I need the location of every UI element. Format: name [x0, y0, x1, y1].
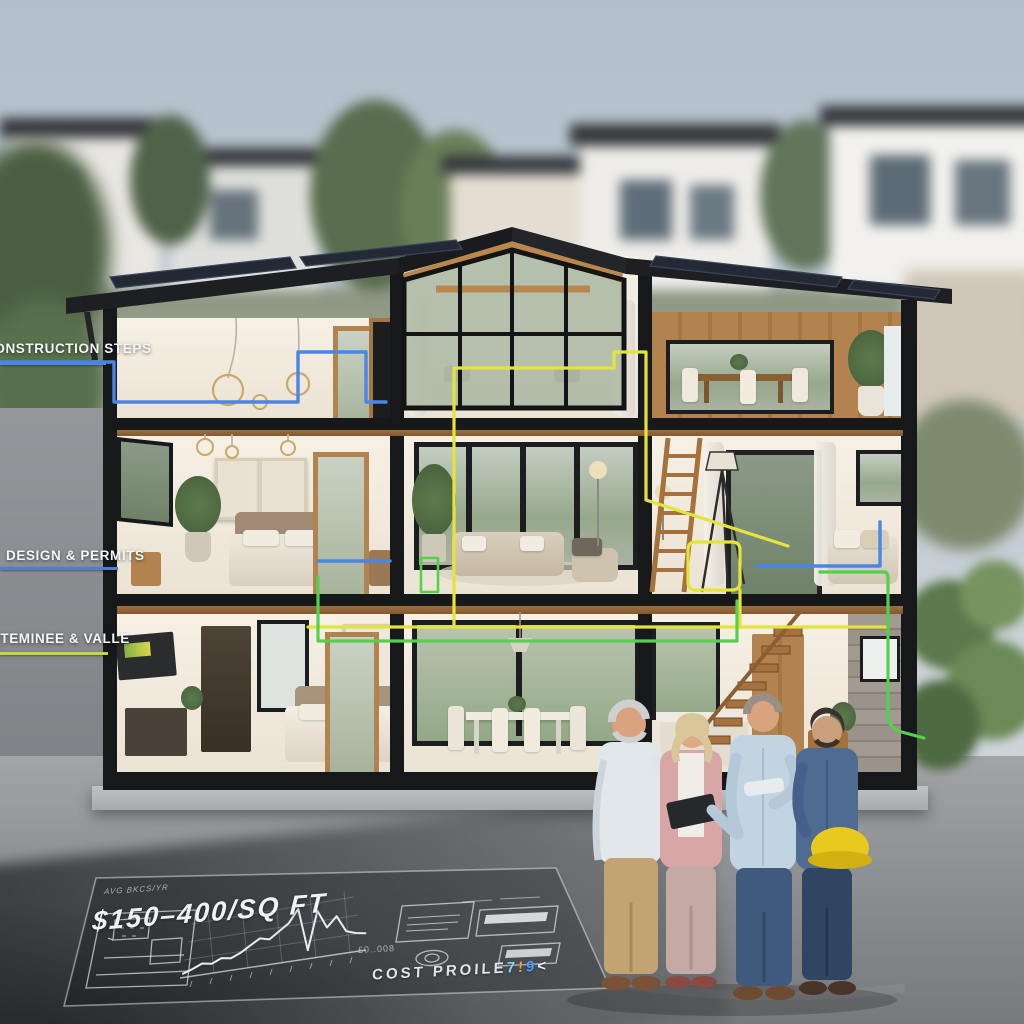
right-hedges: [905, 560, 1024, 790]
frame-wall-a: [390, 266, 404, 790]
cost-profile-glyph: <: [537, 957, 550, 975]
slab-wood-edge: [117, 606, 903, 614]
room-middle-left-bedroom: [117, 434, 390, 594]
wall-art: [259, 458, 307, 520]
chair: [524, 708, 540, 752]
plant-pot: [185, 532, 211, 562]
label-underline: [0, 567, 118, 570]
left-gray-wall: [0, 408, 104, 798]
bed-pillow: [243, 530, 279, 546]
room-middle-right-lounge: [652, 434, 901, 594]
background-house: [905, 270, 1024, 420]
sofa-pillow: [444, 366, 470, 382]
room-middle-living: [404, 434, 638, 594]
wardrobe: [201, 626, 251, 752]
sofa-pillow: [462, 536, 486, 551]
small-window: [856, 450, 901, 506]
room-top-right-dining: [652, 312, 901, 420]
kitchen-counter: [656, 712, 752, 722]
label-construction-steps: CONSTRUCTION STEPS: [0, 341, 152, 356]
dining-table: [466, 712, 570, 720]
label-maintenance-value: NTEMINEE & VALLE: [0, 631, 130, 646]
label-design-permits: DESIGN & PERMITS: [6, 548, 145, 563]
chair: [682, 368, 698, 402]
chair: [570, 706, 586, 750]
small-plant: [181, 686, 203, 710]
tall-cabinet: [752, 634, 804, 770]
background-window: [955, 160, 1010, 225]
nightstand: [369, 550, 390, 586]
dresser: [125, 708, 187, 756]
table-plant: [508, 696, 526, 712]
table-plant: [730, 354, 748, 370]
wall-art: [215, 458, 263, 520]
chair: [740, 370, 756, 404]
room-top-left-lighting: [117, 318, 390, 420]
background-roof: [820, 106, 1024, 126]
potted-tree: [412, 464, 456, 536]
throw-pillow: [572, 538, 602, 556]
sliding-door: [726, 450, 822, 594]
frame-right-wall: [901, 300, 917, 790]
plant: [830, 702, 856, 732]
cushion: [834, 530, 860, 548]
table-leg: [704, 381, 709, 403]
glass-door: [313, 452, 369, 594]
sofa-pillow: [554, 366, 580, 382]
cushion: [862, 530, 888, 548]
kitchen-island: [660, 722, 748, 766]
chair: [492, 708, 508, 752]
potted-tree: [175, 476, 221, 534]
room-loft-living: [404, 256, 638, 420]
curtain: [704, 442, 724, 586]
room-bottom-left-bedroom: [117, 612, 390, 772]
background-window: [690, 185, 734, 240]
label-underline: [0, 652, 108, 655]
background-roof: [442, 156, 588, 174]
chair: [448, 706, 464, 750]
room-kitchen-stairs: [652, 612, 901, 772]
chair: [792, 368, 808, 402]
background-window: [620, 180, 672, 240]
background-tree: [130, 115, 210, 245]
sofa-pillow: [520, 536, 544, 551]
plant-pot: [858, 386, 884, 416]
table-leg: [778, 381, 783, 403]
wood-crate: [808, 730, 848, 766]
bay-window: [117, 437, 173, 527]
tall-window: [369, 318, 390, 420]
bush: [960, 560, 1024, 630]
blueprint-note: £0..008: [358, 943, 396, 955]
background-window: [210, 190, 258, 240]
background-roof: [570, 124, 780, 146]
window: [652, 622, 720, 720]
curtain: [407, 300, 427, 416]
room-bottom-dining: [404, 612, 638, 772]
scene-canvas: CONSTRUCTION STEPS DESIGN & PERMITS NTEM…: [0, 0, 1024, 1024]
plant-pot: [422, 534, 446, 562]
frame-left-wall: [103, 304, 117, 790]
side-window: [884, 326, 901, 416]
slab-wood-edge: [117, 430, 903, 436]
small-window: [860, 636, 900, 682]
frame-base: [103, 772, 917, 790]
curtain: [615, 300, 635, 416]
frame-wall-b: [638, 266, 652, 790]
background-window: [870, 155, 930, 225]
door: [325, 632, 379, 772]
table-leg: [474, 720, 479, 754]
table-leg: [556, 720, 561, 754]
label-underline: [0, 362, 106, 365]
